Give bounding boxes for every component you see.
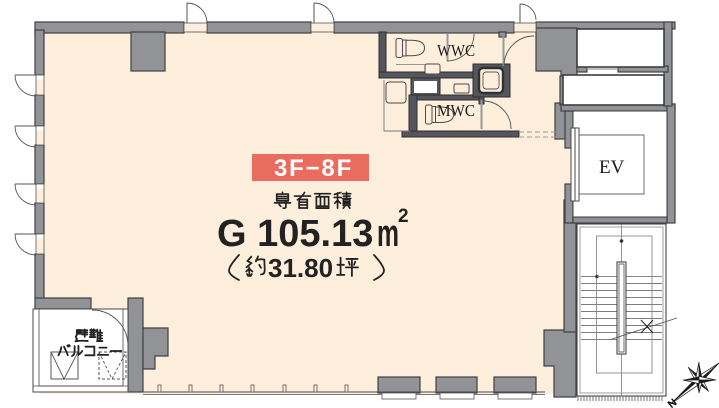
svg-text:2: 2: [398, 206, 409, 227]
svg-text:3F−8F: 3F−8F: [274, 155, 353, 182]
svg-text:G 105.13: G 105.13: [217, 213, 373, 255]
svg-text:EV: EV: [599, 157, 625, 178]
svg-text:MWC: MWC: [437, 101, 475, 120]
svg-text:WWC: WWC: [437, 41, 475, 60]
svg-text:m: m: [377, 213, 399, 255]
svg-text:31.80: 31.80: [268, 253, 333, 283]
